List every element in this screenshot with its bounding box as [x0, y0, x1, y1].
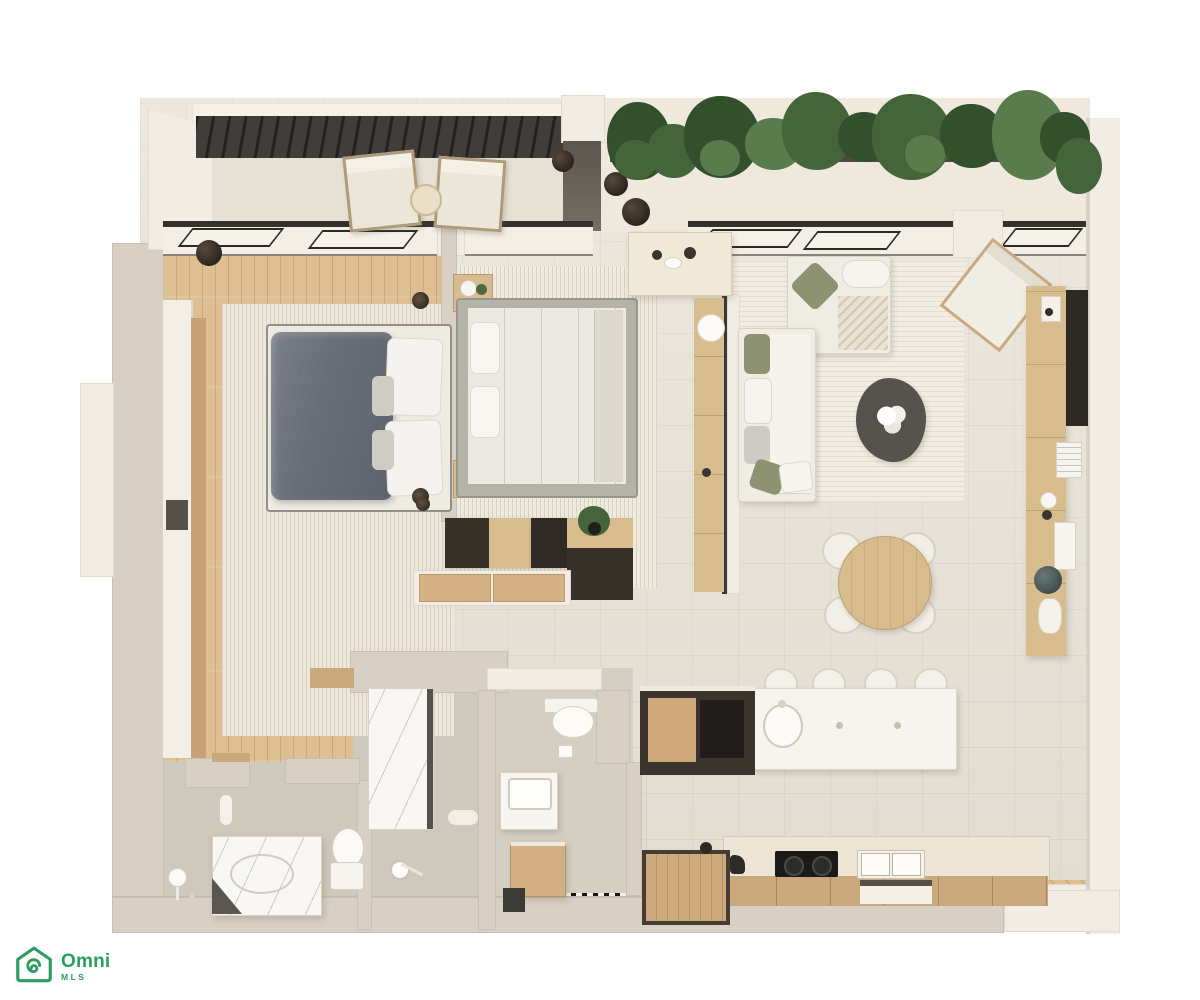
logo-sub: MLS: [61, 973, 110, 982]
bathroom-2: [0, 0, 1200, 1000]
floor-plan-render: Omni MLS: [0, 0, 1200, 1000]
vanity-basin: [508, 778, 552, 810]
omni-mls-logo: Omni MLS: [14, 944, 110, 986]
waste-bin: [503, 888, 525, 912]
logo-brand: Omni: [61, 952, 110, 971]
toilet2-bowl: [552, 706, 594, 738]
omni-house-spiral-icon: [14, 944, 54, 986]
flush-plate: [558, 745, 573, 758]
logo-text: Omni MLS: [61, 952, 110, 982]
